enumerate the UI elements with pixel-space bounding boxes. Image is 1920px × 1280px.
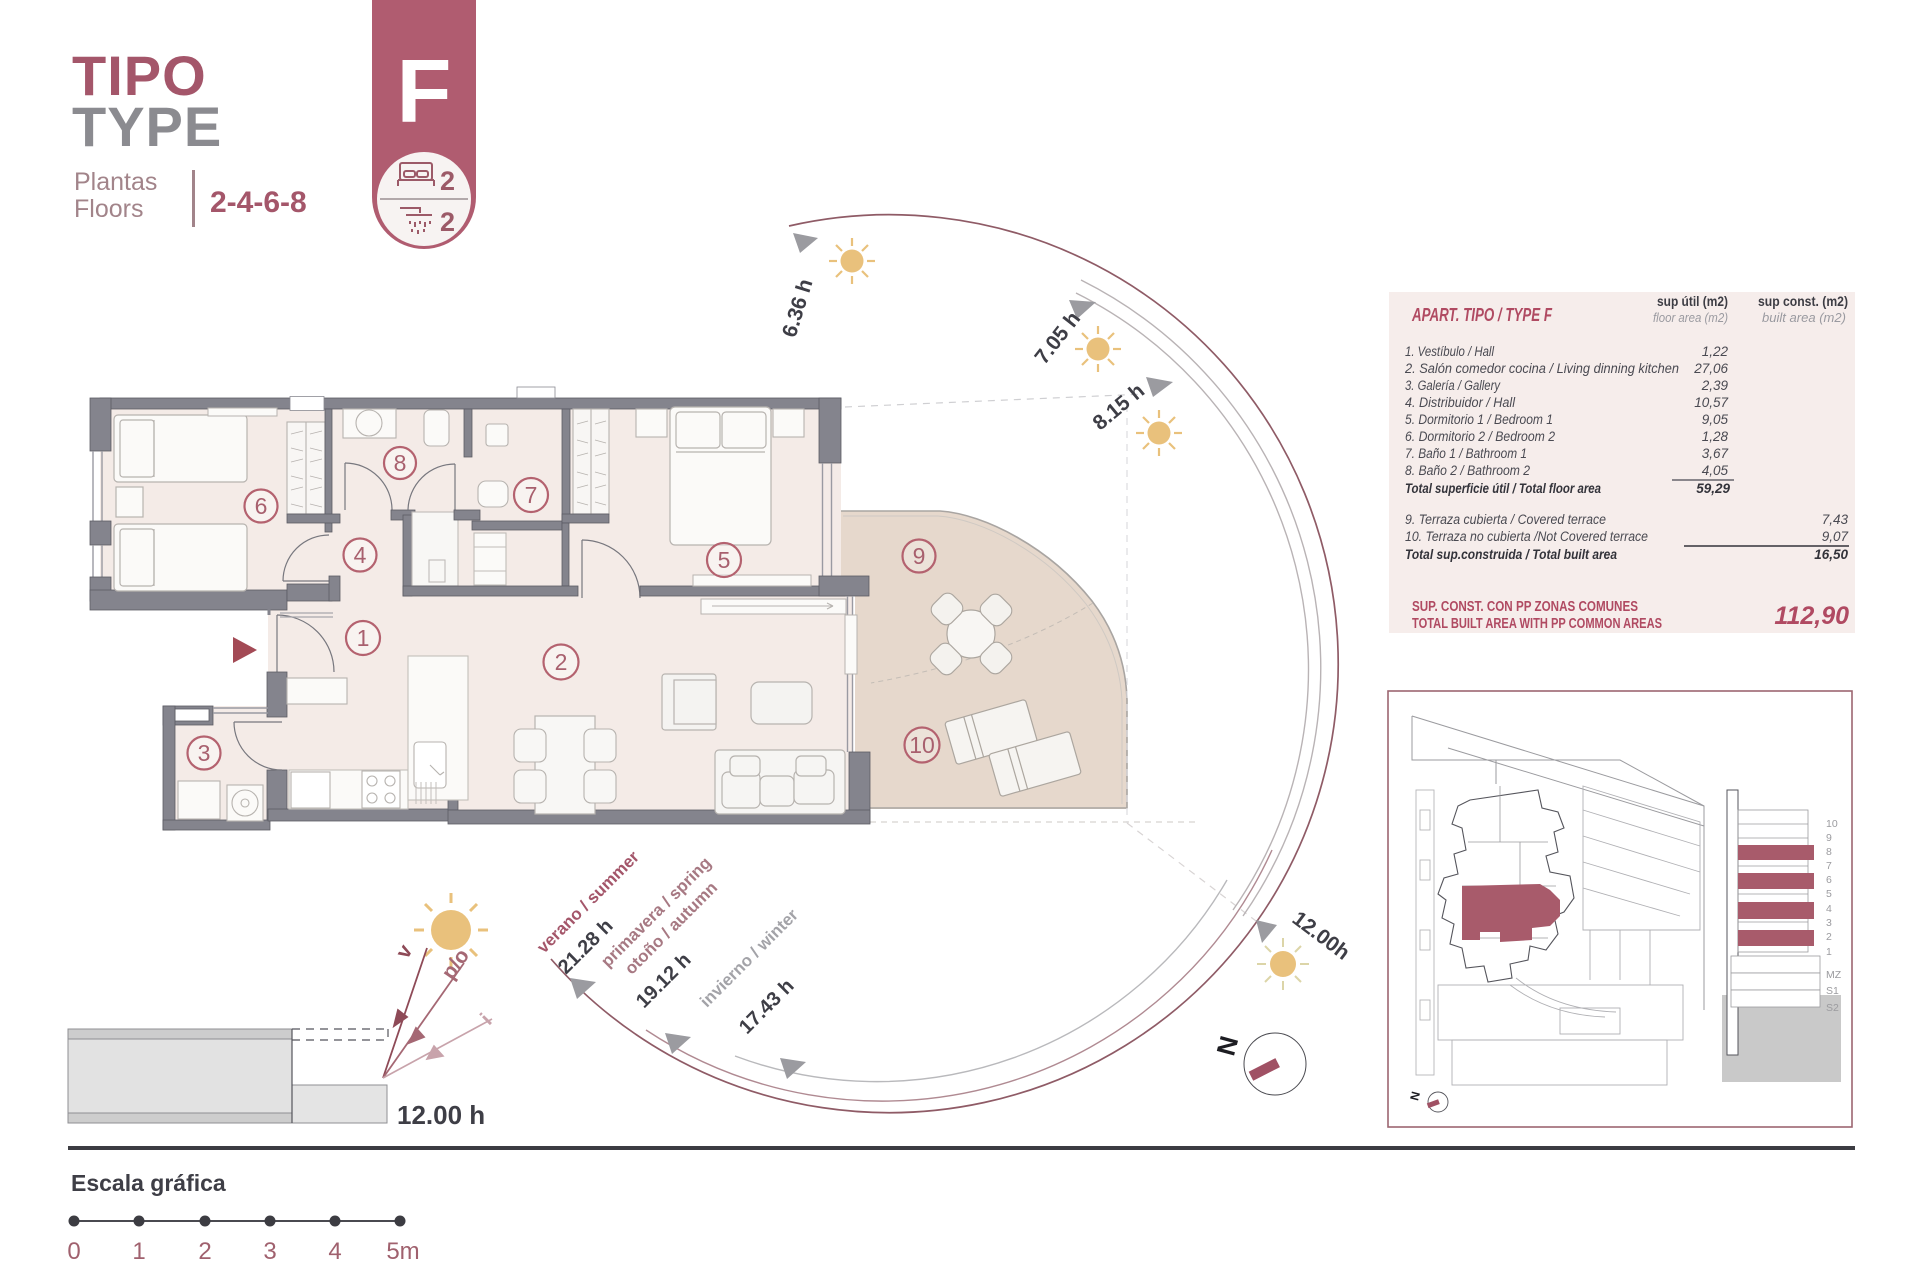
svg-text:7: 7 bbox=[525, 482, 538, 508]
svg-text:1. Vestíbulo / Hall: 1. Vestíbulo / Hall bbox=[1405, 344, 1495, 359]
svg-text:59,29: 59,29 bbox=[1696, 481, 1730, 496]
svg-text:16,50: 16,50 bbox=[1814, 547, 1848, 562]
svg-text:8: 8 bbox=[394, 450, 407, 476]
svg-text:MZ: MZ bbox=[1826, 969, 1842, 981]
svg-text:9: 9 bbox=[913, 543, 926, 569]
svg-text:floor area (m2): floor area (m2) bbox=[1653, 310, 1728, 325]
svg-text:5m: 5m bbox=[386, 1238, 419, 1265]
svg-text:Plantas: Plantas bbox=[74, 168, 157, 196]
svg-text:2. Salón comedor cocina / Livi: 2. Salón comedor cocina / Living dinning… bbox=[1404, 361, 1679, 376]
svg-text:27,06: 27,06 bbox=[1693, 361, 1728, 376]
svg-text:2: 2 bbox=[198, 1238, 211, 1265]
svg-text:6.36 h: 6.36 h bbox=[778, 276, 817, 340]
svg-text:sup const. (m2): sup const. (m2) bbox=[1758, 294, 1848, 309]
svg-text:4: 4 bbox=[1826, 903, 1832, 915]
svg-text:sup útil (m2): sup útil (m2) bbox=[1657, 294, 1728, 309]
svg-text:7.05 h: 7.05 h bbox=[1030, 307, 1085, 368]
svg-text:4: 4 bbox=[328, 1238, 341, 1265]
svg-text:Total sup.construida / Total b: Total sup.construida / Total built area bbox=[1405, 547, 1617, 562]
svg-text:S2: S2 bbox=[1826, 1002, 1839, 1014]
svg-text:2: 2 bbox=[1826, 931, 1832, 943]
svg-text:3: 3 bbox=[263, 1238, 276, 1265]
svg-text:10,57: 10,57 bbox=[1694, 395, 1728, 410]
svg-text:12.00 h: 12.00 h bbox=[397, 1100, 485, 1130]
svg-text:5: 5 bbox=[1826, 888, 1832, 900]
svg-text:9: 9 bbox=[1826, 832, 1832, 844]
svg-text:4. Distribuidor / Hall: 4. Distribuidor / Hall bbox=[1405, 395, 1516, 410]
svg-text:1: 1 bbox=[132, 1238, 145, 1265]
svg-text:5: 5 bbox=[718, 547, 731, 573]
svg-text:6. Dormitorio 2 / Bedroom 2: 6. Dormitorio 2 / Bedroom 2 bbox=[1405, 429, 1555, 444]
svg-text:TYPE: TYPE bbox=[72, 95, 222, 158]
svg-text:2: 2 bbox=[555, 649, 568, 675]
svg-text:4,05: 4,05 bbox=[1702, 463, 1729, 478]
svg-text:10. Terraza no cubierta /Not C: 10. Terraza no cubierta /Not Covered ter… bbox=[1405, 529, 1648, 544]
svg-text:7,43: 7,43 bbox=[1822, 512, 1849, 527]
svg-text:12.00h: 12.00h bbox=[1288, 907, 1354, 965]
svg-text:Floors: Floors bbox=[74, 195, 143, 223]
svg-text:S1: S1 bbox=[1826, 985, 1839, 997]
svg-text:9,05: 9,05 bbox=[1702, 412, 1729, 427]
svg-text:Escala gráfica: Escala gráfica bbox=[71, 1170, 226, 1196]
svg-text:112,90: 112,90 bbox=[1774, 602, 1849, 630]
svg-text:1: 1 bbox=[1826, 946, 1832, 958]
svg-text:7. Baño 1 / Bathroom 1: 7. Baño 1 / Bathroom 1 bbox=[1405, 446, 1527, 461]
svg-text:5. Dormitorio 1 / Bedroom 1: 5. Dormitorio 1 / Bedroom 1 bbox=[1405, 412, 1553, 427]
svg-text:F: F bbox=[397, 42, 452, 142]
svg-text:17.43 h: 17.43 h bbox=[735, 975, 799, 1039]
svg-text:3,67: 3,67 bbox=[1702, 446, 1729, 461]
svg-text:built area (m2): built area (m2) bbox=[1762, 310, 1846, 325]
svg-text:10: 10 bbox=[909, 732, 935, 758]
svg-text:6: 6 bbox=[1826, 874, 1832, 886]
svg-text:SUP. CONST. CON PP ZONAS COMUN: SUP. CONST. CON PP ZONAS COMUNES bbox=[1412, 599, 1638, 615]
svg-text:9,07: 9,07 bbox=[1822, 529, 1849, 544]
svg-text:APART. TIPO / TYPE F: APART. TIPO / TYPE F bbox=[1411, 305, 1552, 325]
svg-text:N: N bbox=[1210, 1033, 1244, 1059]
svg-text:9. Terraza cubierta / Covered: 9. Terraza cubierta / Covered terrace bbox=[1405, 512, 1606, 527]
svg-text:1,28: 1,28 bbox=[1702, 429, 1729, 444]
svg-text:v: v bbox=[391, 941, 417, 963]
svg-text:TOTAL BUILT AREA WITH PP COMMO: TOTAL BUILT AREA WITH PP COMMON AREAS bbox=[1412, 616, 1662, 632]
svg-text:8. Baño 2 / Bathroom 2: 8. Baño 2 / Bathroom 2 bbox=[1405, 463, 1530, 478]
svg-text:3. Galería / Gallery: 3. Galería / Gallery bbox=[1405, 378, 1501, 393]
svg-text:Total superficie útil / Total: Total superficie útil / Total floor area bbox=[1405, 481, 1601, 496]
svg-text:3: 3 bbox=[198, 740, 211, 766]
svg-text:8: 8 bbox=[1826, 846, 1832, 858]
svg-text:1: 1 bbox=[357, 625, 370, 651]
svg-text:7: 7 bbox=[1826, 860, 1832, 872]
svg-text:6: 6 bbox=[255, 493, 268, 519]
svg-text:2-4-6-8: 2-4-6-8 bbox=[210, 186, 307, 219]
svg-text:3: 3 bbox=[1826, 917, 1832, 929]
svg-text:p/o: p/o bbox=[437, 945, 474, 984]
svg-text:2,39: 2,39 bbox=[1701, 378, 1729, 393]
svg-text:2: 2 bbox=[440, 207, 455, 237]
svg-text:1,22: 1,22 bbox=[1702, 344, 1729, 359]
svg-text:4: 4 bbox=[354, 542, 367, 568]
svg-text:8.15 h: 8.15 h bbox=[1089, 379, 1149, 435]
svg-text:10: 10 bbox=[1826, 818, 1838, 830]
svg-text:2: 2 bbox=[440, 166, 455, 196]
svg-text:0: 0 bbox=[67, 1238, 80, 1265]
